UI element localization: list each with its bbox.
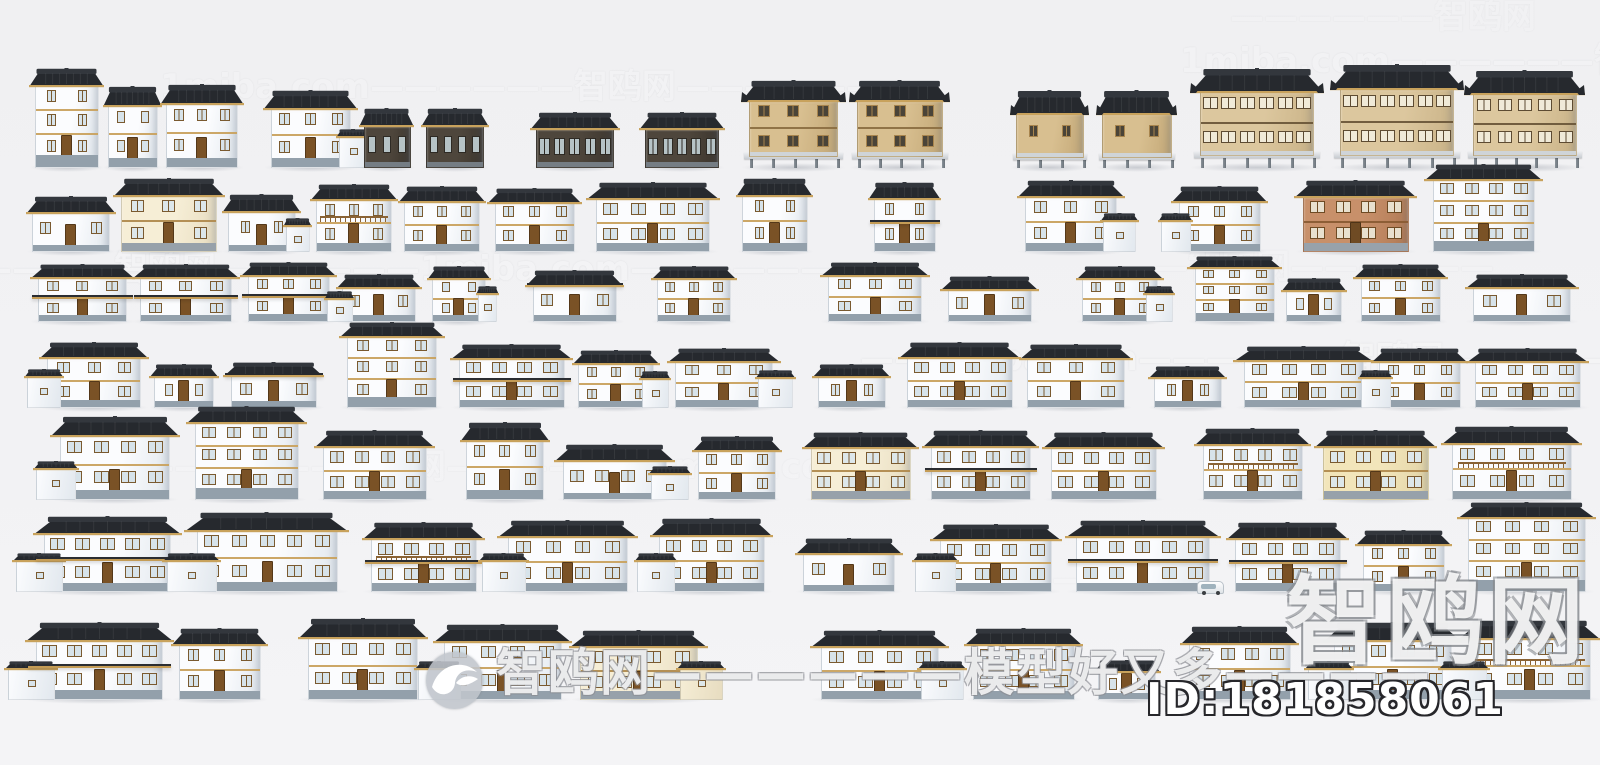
base — [1474, 151, 1575, 155]
model-collection-preview: 1miba.com——————智鸥网——————1miba.com——————智… — [0, 0, 1600, 765]
body-box — [828, 274, 922, 322]
win — [1549, 475, 1564, 487]
win — [1381, 476, 1396, 488]
win — [757, 478, 768, 489]
win — [188, 572, 196, 579]
win — [1356, 476, 1371, 488]
base — [858, 152, 942, 156]
win — [413, 206, 423, 217]
win — [817, 105, 829, 117]
win — [232, 535, 247, 547]
floorline — [196, 445, 297, 447]
door — [369, 471, 380, 491]
roof — [113, 178, 225, 201]
door — [1065, 222, 1076, 243]
win — [1407, 451, 1422, 463]
body-box — [248, 274, 331, 322]
body-box — [749, 99, 838, 157]
win — [1460, 448, 1475, 460]
win — [227, 427, 241, 438]
win — [148, 441, 163, 453]
win — [1477, 131, 1491, 143]
win — [162, 200, 175, 212]
base — [1017, 153, 1083, 157]
annex — [285, 218, 311, 252]
porch — [28, 664, 171, 668]
win — [349, 204, 359, 216]
door — [1398, 566, 1409, 584]
base — [1236, 583, 1339, 591]
annex — [641, 371, 670, 408]
win — [914, 362, 929, 373]
win — [1361, 227, 1376, 239]
roof — [1187, 256, 1282, 273]
win — [817, 135, 829, 147]
win — [429, 568, 444, 580]
porch — [925, 468, 1037, 472]
door — [109, 469, 120, 490]
building-model — [1470, 274, 1574, 322]
win — [202, 474, 216, 485]
door — [453, 298, 464, 315]
win — [1095, 201, 1108, 213]
win — [660, 203, 675, 215]
base — [1364, 584, 1445, 591]
base — [249, 314, 330, 321]
win — [1069, 362, 1083, 373]
win — [838, 301, 851, 311]
door — [1229, 299, 1240, 313]
win — [125, 538, 140, 550]
door — [283, 297, 294, 314]
win — [455, 543, 470, 555]
win — [1162, 567, 1177, 579]
win — [1490, 448, 1505, 460]
roof — [50, 416, 180, 441]
win — [1221, 648, 1235, 660]
win — [336, 307, 344, 314]
building-model — [1022, 180, 1120, 252]
annex — [679, 661, 724, 700]
win — [1029, 649, 1043, 661]
win — [866, 105, 878, 117]
win — [257, 301, 268, 311]
door — [499, 469, 510, 490]
win — [274, 221, 283, 233]
win — [47, 303, 59, 313]
win — [355, 476, 369, 488]
roof — [1158, 213, 1193, 226]
building-model — [152, 364, 216, 408]
building-model — [192, 406, 302, 500]
building-model — [268, 90, 354, 168]
win — [150, 538, 165, 550]
win — [1259, 97, 1274, 109]
win — [510, 646, 525, 658]
building-model — [1320, 430, 1432, 500]
body-box — [1468, 516, 1586, 592]
win — [1538, 643, 1553, 655]
win — [937, 476, 951, 488]
roof — [1096, 90, 1177, 119]
body-box — [35, 84, 99, 168]
win — [325, 228, 335, 240]
win — [685, 387, 699, 397]
door — [1137, 562, 1148, 583]
base — [908, 400, 1011, 407]
win — [396, 643, 411, 655]
roof — [39, 342, 149, 363]
building-model — [1232, 522, 1344, 592]
win — [94, 471, 109, 483]
win — [413, 230, 423, 241]
win — [1188, 541, 1203, 553]
roof — [736, 178, 813, 201]
win — [915, 203, 924, 215]
building-model — [228, 362, 320, 408]
floorline — [348, 357, 436, 359]
win — [1505, 543, 1520, 554]
floorline — [309, 665, 418, 667]
win — [887, 651, 902, 663]
win — [1115, 125, 1125, 137]
win — [1282, 387, 1297, 398]
win — [1242, 568, 1257, 580]
door — [647, 223, 658, 243]
win — [332, 113, 343, 125]
door — [214, 670, 225, 691]
win — [554, 138, 565, 155]
building-model — [1196, 68, 1318, 168]
annex — [326, 291, 354, 322]
win — [67, 673, 82, 685]
win — [962, 476, 976, 488]
roof — [1190, 68, 1324, 97]
win — [1256, 303, 1267, 311]
building-model — [696, 436, 778, 500]
body-box — [166, 102, 237, 168]
base — [1052, 491, 1155, 499]
building-model — [1100, 90, 1174, 168]
door — [731, 473, 742, 492]
win — [1465, 228, 1479, 239]
roof — [940, 276, 1039, 295]
win — [1203, 286, 1214, 294]
win — [772, 389, 780, 396]
win — [743, 567, 758, 579]
roof — [650, 518, 773, 541]
body-box — [308, 636, 419, 700]
win — [755, 200, 764, 212]
base — [427, 162, 483, 167]
win — [677, 138, 687, 155]
win — [149, 303, 162, 313]
roof — [812, 364, 891, 382]
win — [1054, 675, 1068, 687]
body-box — [1433, 178, 1535, 252]
building-model — [945, 276, 1035, 322]
building-model — [106, 86, 160, 168]
roof — [741, 80, 846, 106]
roof — [162, 553, 221, 566]
floorline — [1474, 123, 1575, 125]
building-model — [746, 80, 841, 168]
building-model — [344, 322, 440, 408]
win — [117, 140, 125, 152]
roof — [1281, 278, 1347, 296]
roof — [639, 371, 671, 384]
door — [1114, 298, 1125, 315]
win — [597, 294, 609, 306]
win — [67, 645, 82, 657]
door — [1516, 294, 1527, 315]
door — [870, 297, 881, 314]
win — [962, 451, 976, 463]
win — [787, 105, 799, 117]
roof — [427, 266, 491, 284]
win — [378, 568, 393, 580]
win — [1361, 130, 1376, 142]
win — [369, 672, 384, 684]
body-box — [874, 197, 936, 252]
building-model — [1360, 530, 1448, 592]
base — [1028, 400, 1124, 407]
win — [1002, 544, 1017, 556]
roof — [339, 322, 445, 342]
win — [1407, 476, 1422, 488]
roof — [1171, 186, 1268, 207]
win — [787, 135, 799, 147]
building-model — [164, 84, 240, 168]
win — [1380, 130, 1395, 142]
win — [1283, 475, 1297, 487]
shadow — [1010, 163, 1089, 172]
win — [1109, 476, 1124, 488]
win — [539, 646, 554, 658]
door — [436, 225, 447, 244]
roof — [1466, 348, 1589, 367]
win — [227, 449, 241, 460]
building-model — [592, 182, 714, 252]
win — [1203, 131, 1218, 143]
win — [1209, 475, 1223, 487]
win — [131, 200, 144, 212]
win — [1240, 131, 1255, 143]
win — [466, 386, 481, 397]
body-box — [1200, 90, 1315, 156]
roof — [898, 342, 1021, 363]
win — [525, 473, 536, 485]
win — [106, 303, 118, 313]
win — [355, 451, 369, 463]
win — [148, 471, 163, 483]
win — [688, 203, 703, 215]
door — [1522, 383, 1533, 400]
building-model — [1024, 344, 1128, 408]
win — [1109, 567, 1124, 579]
roof — [1441, 426, 1582, 449]
body-box — [1363, 543, 1446, 592]
roof — [810, 630, 949, 652]
win — [858, 651, 873, 663]
win — [1188, 567, 1203, 579]
win — [141, 140, 149, 152]
win — [1229, 286, 1240, 294]
roof — [1294, 180, 1417, 202]
roof — [1323, 622, 1462, 646]
win — [429, 543, 444, 555]
building-model — [245, 262, 333, 322]
floorline — [109, 133, 158, 135]
win — [141, 111, 149, 123]
win — [1172, 232, 1180, 239]
win — [91, 222, 102, 234]
body-box — [1340, 87, 1455, 156]
win — [241, 675, 252, 687]
win — [1005, 675, 1019, 687]
win — [40, 388, 48, 395]
annex — [920, 661, 965, 700]
roof — [1314, 430, 1437, 452]
win — [965, 386, 980, 397]
roof — [359, 108, 414, 131]
win — [279, 113, 290, 125]
win — [36, 572, 44, 579]
win — [1380, 95, 1395, 107]
win — [118, 362, 131, 373]
door — [610, 384, 621, 401]
win — [241, 649, 252, 661]
win — [1324, 298, 1332, 310]
win — [631, 203, 646, 215]
door — [1478, 223, 1489, 241]
win — [894, 135, 906, 147]
win — [125, 566, 140, 578]
base — [812, 491, 910, 499]
base — [699, 492, 774, 499]
building-model — [456, 344, 568, 408]
building-model — [576, 630, 702, 700]
win — [47, 90, 56, 102]
win — [940, 386, 955, 397]
roof — [132, 264, 240, 283]
win — [174, 139, 184, 151]
win — [1498, 99, 1512, 111]
building-model — [118, 178, 220, 252]
building-model — [672, 348, 776, 408]
win — [174, 109, 184, 121]
body-box — [1203, 443, 1303, 500]
win — [492, 362, 507, 373]
door — [718, 383, 729, 400]
roof — [1194, 428, 1311, 450]
win — [404, 543, 419, 555]
door — [529, 225, 540, 244]
win — [278, 449, 292, 460]
building-model — [192, 512, 342, 592]
roof — [922, 430, 1039, 452]
roof — [1100, 213, 1139, 226]
win — [1568, 673, 1583, 685]
door — [633, 671, 644, 691]
win — [665, 303, 675, 313]
win — [1029, 675, 1043, 687]
win — [975, 544, 990, 556]
door — [77, 298, 88, 315]
roof — [26, 196, 116, 218]
win — [858, 676, 873, 688]
win — [570, 470, 584, 482]
building-model — [928, 430, 1034, 500]
win — [587, 389, 597, 399]
win — [461, 230, 471, 241]
win — [1240, 97, 1255, 109]
win — [1330, 451, 1345, 463]
win — [663, 138, 673, 155]
win — [373, 228, 383, 240]
base — [1196, 313, 1275, 321]
base — [875, 243, 935, 251]
door — [94, 669, 105, 690]
base — [309, 690, 418, 699]
annex — [757, 370, 794, 408]
win — [315, 535, 330, 547]
win — [1563, 543, 1578, 554]
win — [817, 476, 831, 488]
building-model — [492, 188, 578, 252]
win — [975, 568, 990, 580]
floorline — [1196, 283, 1275, 285]
win — [1259, 131, 1274, 143]
building-model — [1470, 70, 1580, 168]
win — [569, 138, 580, 155]
win — [758, 135, 770, 147]
roof — [1358, 370, 1393, 383]
building-model — [304, 618, 422, 700]
body-box — [195, 421, 298, 500]
win — [253, 449, 267, 460]
base — [804, 585, 894, 591]
win — [1012, 297, 1024, 309]
building-model — [800, 538, 898, 592]
building-model — [35, 264, 130, 322]
base — [167, 158, 236, 167]
win — [543, 362, 558, 373]
win — [165, 384, 173, 396]
building-model — [1358, 264, 1444, 322]
building-model — [30, 196, 112, 252]
win — [1091, 303, 1101, 313]
win — [1399, 130, 1414, 142]
win — [603, 228, 618, 240]
roof — [1464, 70, 1585, 99]
win — [253, 427, 267, 438]
win — [117, 673, 132, 685]
win — [194, 227, 207, 239]
base — [365, 162, 410, 167]
porch — [1068, 559, 1219, 563]
win — [1283, 449, 1297, 461]
win — [556, 230, 567, 241]
base — [122, 243, 216, 251]
win — [466, 362, 481, 373]
roof — [1355, 530, 1452, 550]
win — [373, 204, 383, 216]
door — [497, 670, 508, 691]
door — [1182, 380, 1193, 401]
win — [1519, 448, 1534, 460]
building-model — [137, 264, 235, 322]
